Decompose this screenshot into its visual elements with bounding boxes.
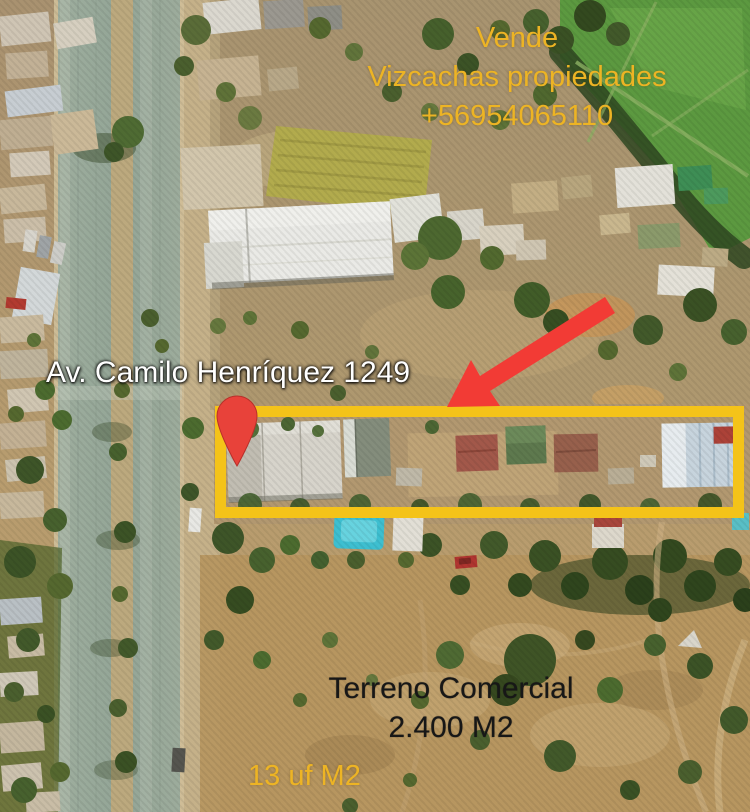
property-boundary-highlight: [215, 406, 744, 518]
banner-agency-name: Vizcachas propiedades: [282, 58, 750, 97]
address-label: Av. Camilo Henríquez 1249: [46, 353, 410, 392]
property-area-label: 2.400 M2: [251, 708, 651, 747]
warehouse: [202, 201, 394, 290]
property-type-label: Terreno Comercial: [251, 669, 651, 708]
listing-info: Terreno Comercial 2.400 M2: [251, 669, 651, 747]
banner-sale-label: Vende: [282, 19, 750, 58]
banner-phone-number: +56954065110: [282, 97, 750, 136]
listing-ad: Vende Vizcachas propiedades +56954065110…: [0, 0, 750, 812]
price-label: 13 uf M2: [248, 757, 361, 796]
seller-banner: Vende Vizcachas propiedades +56954065110: [282, 19, 750, 136]
